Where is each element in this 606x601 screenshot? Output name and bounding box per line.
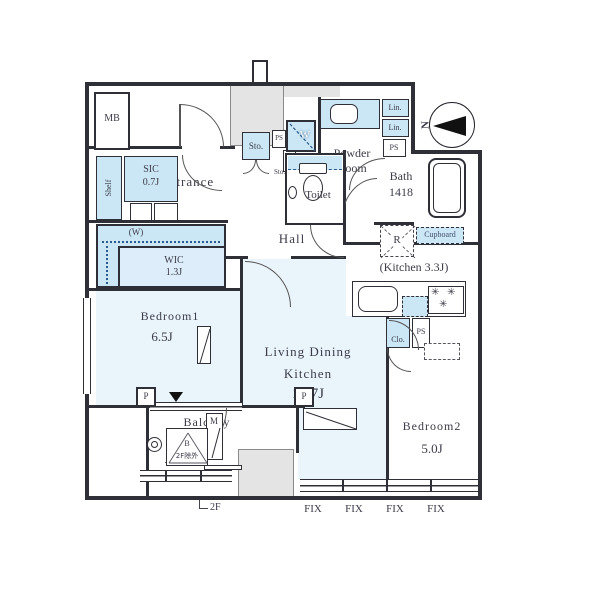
wall-segment — [240, 256, 243, 408]
pillar-left-label: P — [143, 392, 148, 401]
escape-hatch-note: 2F除外 — [176, 453, 198, 460]
toilet-tank — [299, 163, 327, 174]
stove-burner-icon: ✳ — [439, 300, 447, 310]
wall-segment — [411, 150, 482, 154]
ps-powder-label: PS — [390, 144, 399, 152]
fridge-label: R — [391, 235, 402, 246]
hanger-pipe-line — [102, 241, 220, 243]
kitchen-label: (Kitchen 3.3J) — [380, 261, 449, 273]
fix-label-1: FIX — [304, 504, 322, 515]
compass-north-label: N — [421, 121, 432, 129]
meter-panel-label: M — [210, 417, 218, 426]
railing-post — [200, 471, 202, 481]
fix-window-strip — [300, 479, 478, 492]
wall-segment — [478, 150, 482, 500]
compass-icon — [429, 102, 475, 148]
door-leaf — [179, 104, 181, 147]
linen-2-label: Lin. — [388, 124, 401, 132]
cupboard-label: Cupboard — [424, 231, 456, 239]
bedroom1-label: Bedroom1 — [141, 310, 200, 322]
ps-top-label: PS — [275, 135, 283, 142]
counter-diagonal-icon — [198, 327, 212, 365]
hanger-pipe-line-vertical — [106, 246, 108, 284]
wall-segment — [85, 82, 89, 500]
bathtub-inner — [433, 163, 461, 213]
fix-label-2: FIX — [345, 504, 363, 515]
kitchen-sink — [358, 286, 398, 312]
wall-segment — [226, 256, 248, 259]
counter-corner-piece — [402, 296, 428, 317]
faucet-inner — [151, 441, 158, 448]
ps-kitchen-label: PS — [417, 328, 426, 336]
bath-size-label: 1418 — [389, 186, 413, 198]
ldk-label-2: Kitchen — [284, 367, 332, 380]
storage-large-label: Sto. — [249, 142, 263, 151]
balcony-railing — [140, 470, 232, 482]
floor-note-bracket — [199, 500, 208, 509]
toilet-label: Toilet — [305, 190, 331, 201]
wic-label-2: 1.3J — [166, 268, 182, 278]
ldk-counter — [303, 408, 357, 430]
shelf-label: Shelf — [105, 180, 113, 197]
window-mullion — [342, 480, 344, 491]
wic-label-1: WIC — [164, 256, 183, 266]
toilet-sink — [288, 186, 297, 199]
duct-box — [252, 60, 268, 84]
storage-small-label: Sto. — [274, 169, 285, 176]
common-area-block-bottom — [238, 449, 294, 497]
door-arc — [387, 348, 411, 372]
wall-segment — [85, 82, 415, 86]
sic-label-1: SIC — [143, 165, 159, 175]
wall-segment — [411, 82, 415, 154]
bedroom2-size-label: 5.0J — [421, 442, 442, 455]
mb-label: MB — [104, 114, 120, 124]
stove-burner-icon: ✳ — [431, 288, 439, 298]
bedroom1-counter — [197, 326, 211, 364]
floor-plan: MB Entrance Shelf SIC 0.7J (W) WIC 1.3J … — [0, 0, 606, 601]
railing-post — [165, 471, 167, 481]
vanity-sink — [330, 104, 358, 124]
sic-sub-box — [130, 203, 152, 221]
door-arc — [180, 104, 224, 147]
window-mullion — [386, 480, 388, 491]
window-mullion — [430, 480, 432, 491]
wall-segment — [85, 496, 482, 500]
dashed-storage — [424, 343, 460, 360]
door-arc — [310, 225, 344, 258]
counter-diagonal-icon — [304, 409, 358, 431]
hatch-cross-icon — [167, 429, 209, 467]
stove-burner-icon: ✳ — [447, 288, 455, 298]
wall-segment — [85, 288, 243, 291]
washer-label: W — [300, 130, 310, 141]
sic-sub-box — [154, 203, 178, 221]
wall-segment — [146, 408, 149, 496]
bath-label: Bath — [390, 170, 413, 182]
escape-hatch-label: B — [184, 440, 189, 448]
north-arrow-icon — [430, 103, 476, 149]
direction-marker-icon — [169, 392, 183, 402]
floor-note-label: 2F — [210, 503, 221, 513]
bedroom1-size-label: 6.5J — [151, 330, 172, 343]
bedroom2-label: Bedroom2 — [403, 420, 462, 432]
linen-1-label: Lin. — [388, 104, 401, 112]
pillar-right-label: P — [301, 392, 306, 401]
hanger-pipe-label: (W) — [129, 228, 144, 237]
fix-label-3: FIX — [386, 504, 404, 515]
window — [83, 298, 91, 394]
fix-label-4: FIX — [427, 504, 445, 515]
door-arc — [243, 160, 256, 174]
sic-label-2: 0.7J — [143, 178, 159, 188]
wall-segment — [296, 405, 299, 453]
ldk-label-1: Living Dining — [264, 345, 351, 358]
hall-label: Hall — [279, 232, 305, 245]
door-arc — [256, 160, 269, 174]
